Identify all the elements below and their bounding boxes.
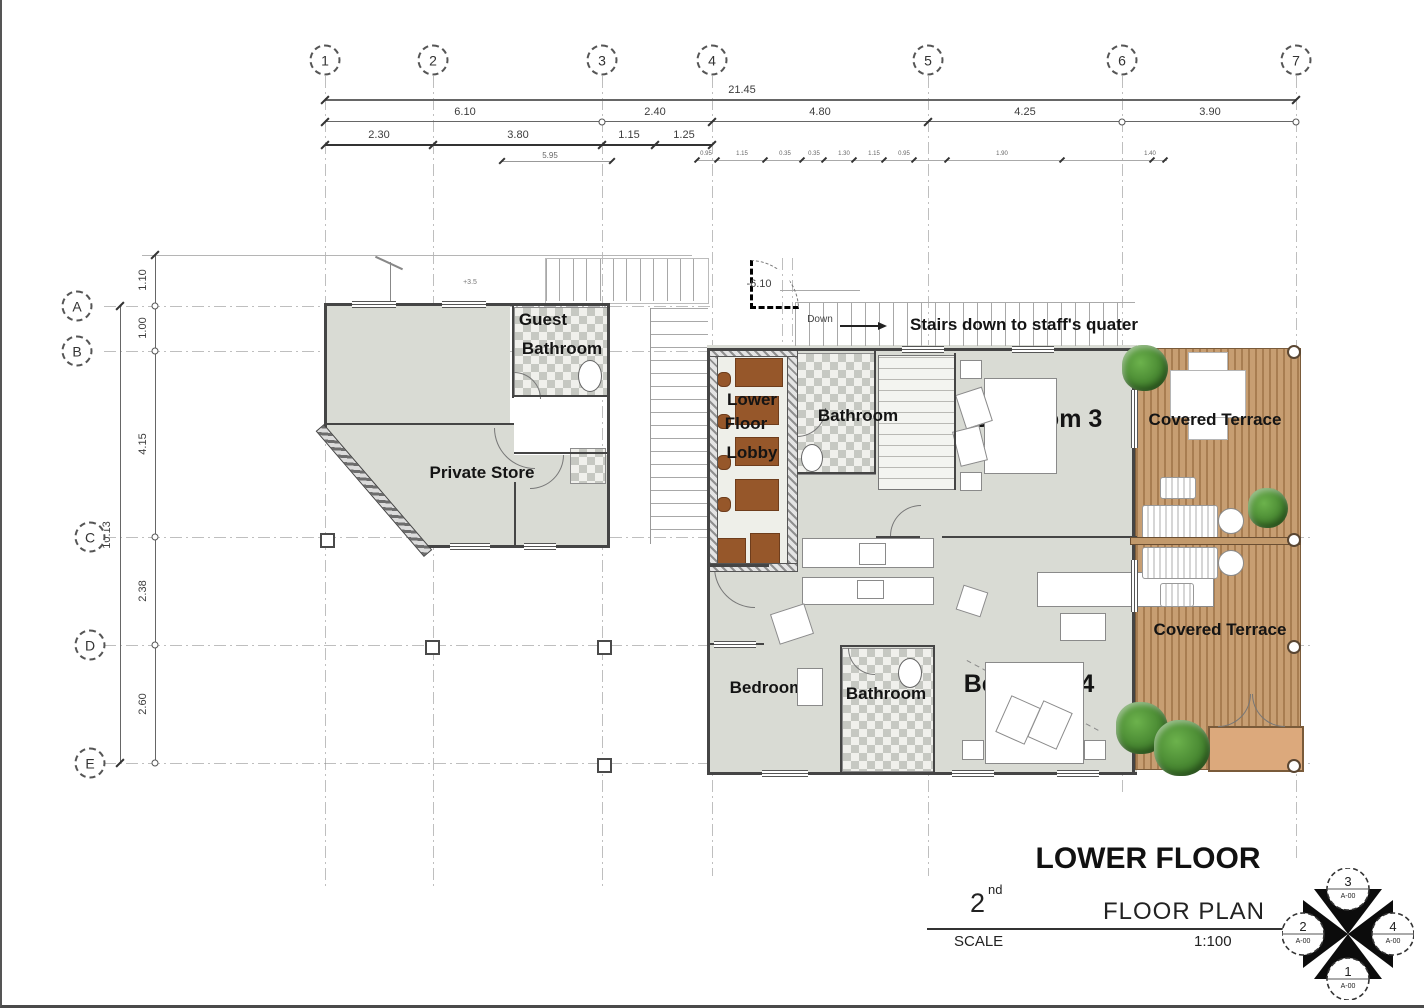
column-marker	[425, 640, 440, 655]
wall	[607, 303, 610, 548]
stair-tread	[651, 438, 708, 439]
stair-tread	[667, 259, 668, 301]
stairs-annotation: Stairs down to staff's quater	[910, 315, 1138, 335]
nightstand	[960, 472, 982, 491]
stair-tread	[651, 360, 708, 361]
stair-tread	[651, 477, 708, 478]
dim-tiny: 0.95	[700, 151, 712, 157]
grid-column-bubble: 1	[310, 45, 341, 76]
dim-tick	[152, 534, 159, 541]
stair-flight-upper	[545, 258, 709, 304]
stair-tread	[651, 503, 708, 504]
wall	[797, 472, 876, 474]
stair-tread	[651, 386, 708, 387]
kitchen-sink	[857, 580, 884, 599]
lobby-plant	[717, 497, 731, 512]
dim-tick	[608, 157, 615, 164]
grid-column-bubble: 7	[1281, 45, 1312, 76]
nightstand	[1084, 740, 1106, 760]
window	[952, 770, 994, 777]
wall	[942, 536, 1137, 538]
tree	[1122, 345, 1168, 391]
dimension-line	[155, 255, 156, 763]
grid-column-bubble: 3	[587, 45, 618, 76]
wall	[324, 423, 514, 425]
wall	[933, 645, 935, 773]
dim-tiny: 1.90	[996, 151, 1008, 157]
terrace-divider-beam	[1130, 537, 1301, 545]
grid-column-bubble: 5	[913, 45, 944, 76]
room-label-lobby: Lobby	[727, 443, 778, 463]
stair-tread	[586, 259, 587, 301]
scale-value: 1:100	[1194, 933, 1232, 950]
dim-tiny: 0.35	[779, 151, 791, 157]
dim-total-width: 21.45	[728, 84, 756, 96]
dim-left: 1.00	[137, 317, 149, 338]
plan-type-label: FLOOR PLAN	[1103, 898, 1265, 926]
dim-tick	[152, 348, 159, 355]
wall	[840, 645, 842, 773]
dim-tick	[1293, 119, 1300, 126]
dim-tick	[152, 642, 159, 649]
nightstand	[962, 740, 984, 760]
stair-tread	[651, 373, 708, 374]
window	[1131, 390, 1138, 448]
stair-tread	[640, 259, 641, 301]
window	[450, 543, 490, 550]
room-label-bathroom-bottom: Bathroom	[846, 684, 926, 704]
room-label-guest-bathroom: Bathroom	[522, 339, 602, 359]
dim-sub: 5.95	[542, 151, 558, 160]
lounge-table	[1160, 477, 1196, 499]
dim-tiny: 0.95	[898, 151, 910, 157]
dimension-line	[325, 121, 1296, 122]
side-table-round	[1218, 508, 1244, 534]
lobby-hatched-wall	[787, 348, 798, 572]
stair-tread	[559, 259, 560, 301]
tree	[1248, 488, 1288, 528]
down-arrow-line	[840, 325, 878, 327]
guest-bath-sink	[578, 360, 602, 392]
stair-tread	[573, 259, 574, 301]
stair-tread	[651, 347, 708, 348]
storage-room-floor	[327, 305, 510, 425]
level-marker: +3.5	[463, 279, 477, 286]
dim-segment: 6.10	[454, 106, 475, 118]
lounge-table	[1160, 583, 1194, 607]
stair-tread	[795, 303, 796, 346]
entry-door-leaf	[375, 256, 403, 270]
sheet-title: LOWER FLOOR	[1036, 842, 1261, 876]
terrace-column	[1287, 345, 1301, 359]
dim-tiny: 1.15	[736, 151, 748, 157]
entry-door-leaf	[390, 262, 391, 304]
stair-tread	[651, 321, 708, 322]
lobby-plant	[717, 372, 731, 387]
window	[1131, 560, 1138, 612]
level-marker: -6.10	[746, 278, 771, 290]
room-label-bathroom-top: Bathroom	[818, 406, 898, 426]
wall	[514, 482, 516, 546]
title-block-rule	[927, 928, 1285, 930]
dim-segment: 4.80	[809, 106, 830, 118]
room-label-guest-bathroom: Guest	[519, 310, 567, 330]
lobby-step	[735, 479, 779, 511]
sheet-number: 2	[1299, 919, 1306, 934]
wall	[512, 305, 514, 398]
lounge-chair	[1142, 547, 1218, 579]
sheet-ref: A-00	[1296, 938, 1311, 945]
stair-flight-main	[650, 308, 708, 544]
dim-left: 4.15	[137, 433, 149, 454]
terrace-column	[1287, 759, 1301, 773]
sheet-number: 4	[1389, 919, 1396, 934]
sheet-reference-compass: 3 A-00 2 A-00 4 A-00 1 A-00	[1282, 868, 1414, 1000]
window	[352, 301, 396, 308]
scale-label: SCALE	[954, 933, 1003, 950]
dim-segment: 1.25	[673, 129, 694, 141]
grid-row-bubble: B	[62, 336, 93, 367]
terrace-column	[1287, 640, 1301, 654]
wall	[876, 536, 920, 538]
rug	[1060, 613, 1106, 641]
sheet-ref: A-00	[1386, 938, 1401, 945]
dim-tiny: 1.40	[1144, 151, 1156, 157]
stair-tread	[651, 464, 708, 465]
bed	[984, 378, 1057, 474]
dim-segment: 3.80	[507, 129, 528, 141]
dim-tiny: 0.35	[808, 151, 820, 157]
dimension-line	[325, 99, 1296, 101]
wall	[840, 645, 935, 647]
stair-tread	[693, 259, 694, 301]
sheet-number: 1	[1344, 964, 1351, 979]
dim-segment: 3.90	[1199, 106, 1220, 118]
grid-line	[325, 76, 326, 890]
dim-segment: 2.40	[644, 106, 665, 118]
nightstand	[960, 360, 982, 379]
sheet-ref: A-00	[1341, 893, 1356, 900]
room-label-terrace-bottom: Covered Terrace	[1154, 620, 1287, 640]
grid-row-bubble: C	[75, 522, 106, 553]
side-table	[797, 668, 823, 706]
stair-tread	[651, 412, 708, 413]
stair-tread	[651, 451, 708, 452]
window	[524, 543, 556, 550]
stair-tread	[680, 259, 681, 301]
lobby-step	[735, 358, 783, 387]
stair-tread	[613, 259, 614, 301]
wall	[324, 303, 327, 428]
dim-tick	[152, 303, 159, 310]
floor-number: 2	[970, 888, 985, 919]
room-label-lobby: Floor	[725, 414, 768, 434]
column-marker	[597, 758, 612, 773]
window	[1012, 346, 1054, 353]
terrace-column	[1287, 533, 1301, 547]
wall	[707, 564, 769, 567]
sheet-number: 3	[1344, 874, 1351, 889]
dim-segment: 2.30	[368, 129, 389, 141]
column-marker	[320, 533, 335, 548]
stair-tread	[653, 259, 654, 301]
dimension-line	[120, 306, 121, 763]
column-marker	[597, 640, 612, 655]
dim-tick	[1119, 119, 1126, 126]
window	[714, 641, 756, 648]
toilet	[801, 444, 823, 472]
sheet-ref: A-00	[1341, 983, 1356, 990]
dim-left: 1.10	[137, 269, 149, 290]
grid-column-bubble: 6	[1107, 45, 1138, 76]
grid-column-bubble: 4	[697, 45, 728, 76]
wall	[512, 395, 609, 397]
grid-row-bubble: E	[75, 748, 106, 779]
dim-left: 2.38	[137, 580, 149, 601]
dim-tick	[599, 119, 606, 126]
dimension-line	[502, 161, 612, 162]
stair-tread	[546, 259, 547, 301]
floor-ordinal: nd	[988, 882, 1002, 897]
stair-tread	[651, 516, 708, 517]
down-arrow-head	[878, 322, 887, 330]
stair-tread	[600, 259, 601, 301]
grid-column-bubble: 2	[418, 45, 449, 76]
stair-tread	[651, 490, 708, 491]
lounge-chair	[1142, 505, 1218, 539]
dim-left: 2.60	[137, 693, 149, 714]
grid-row-bubble: A	[62, 291, 93, 322]
dimension-line	[697, 160, 1167, 161]
stair-tread	[651, 334, 708, 335]
dim-segment: 1.15	[618, 129, 639, 141]
stair-tread	[837, 303, 838, 346]
kitchen-sink	[859, 543, 886, 565]
dim-tick	[152, 760, 159, 767]
room-label-lobby: Lower	[727, 390, 777, 410]
stair-tread	[626, 259, 627, 301]
window	[1057, 770, 1099, 777]
window	[762, 770, 808, 777]
grid-row-bubble: D	[75, 630, 106, 661]
stair-tread	[907, 303, 908, 346]
wall	[707, 348, 710, 775]
wall	[954, 353, 956, 490]
dim-tick	[1162, 157, 1168, 163]
down-label: Down	[807, 314, 833, 325]
reference-line	[142, 255, 692, 256]
dim-tiny: 1.15	[868, 151, 880, 157]
stair-tread	[651, 425, 708, 426]
dim-segment: 4.25	[1014, 106, 1035, 118]
window	[442, 301, 486, 308]
floor-plan-sheet: 1 2 3 4 5 6 7 A B C D E 21.45 6.10 2.40 …	[0, 0, 1424, 1008]
tree	[1154, 720, 1210, 776]
wall	[514, 452, 609, 454]
stair-tread	[893, 303, 894, 346]
dim-tiny: 1.30	[838, 151, 850, 157]
side-table-round	[1218, 550, 1244, 576]
room-label-terrace-top: Covered Terrace	[1149, 410, 1282, 430]
stair-tread	[651, 529, 708, 530]
stair-tread	[651, 308, 708, 309]
stair-tread	[651, 399, 708, 400]
window	[902, 346, 944, 353]
